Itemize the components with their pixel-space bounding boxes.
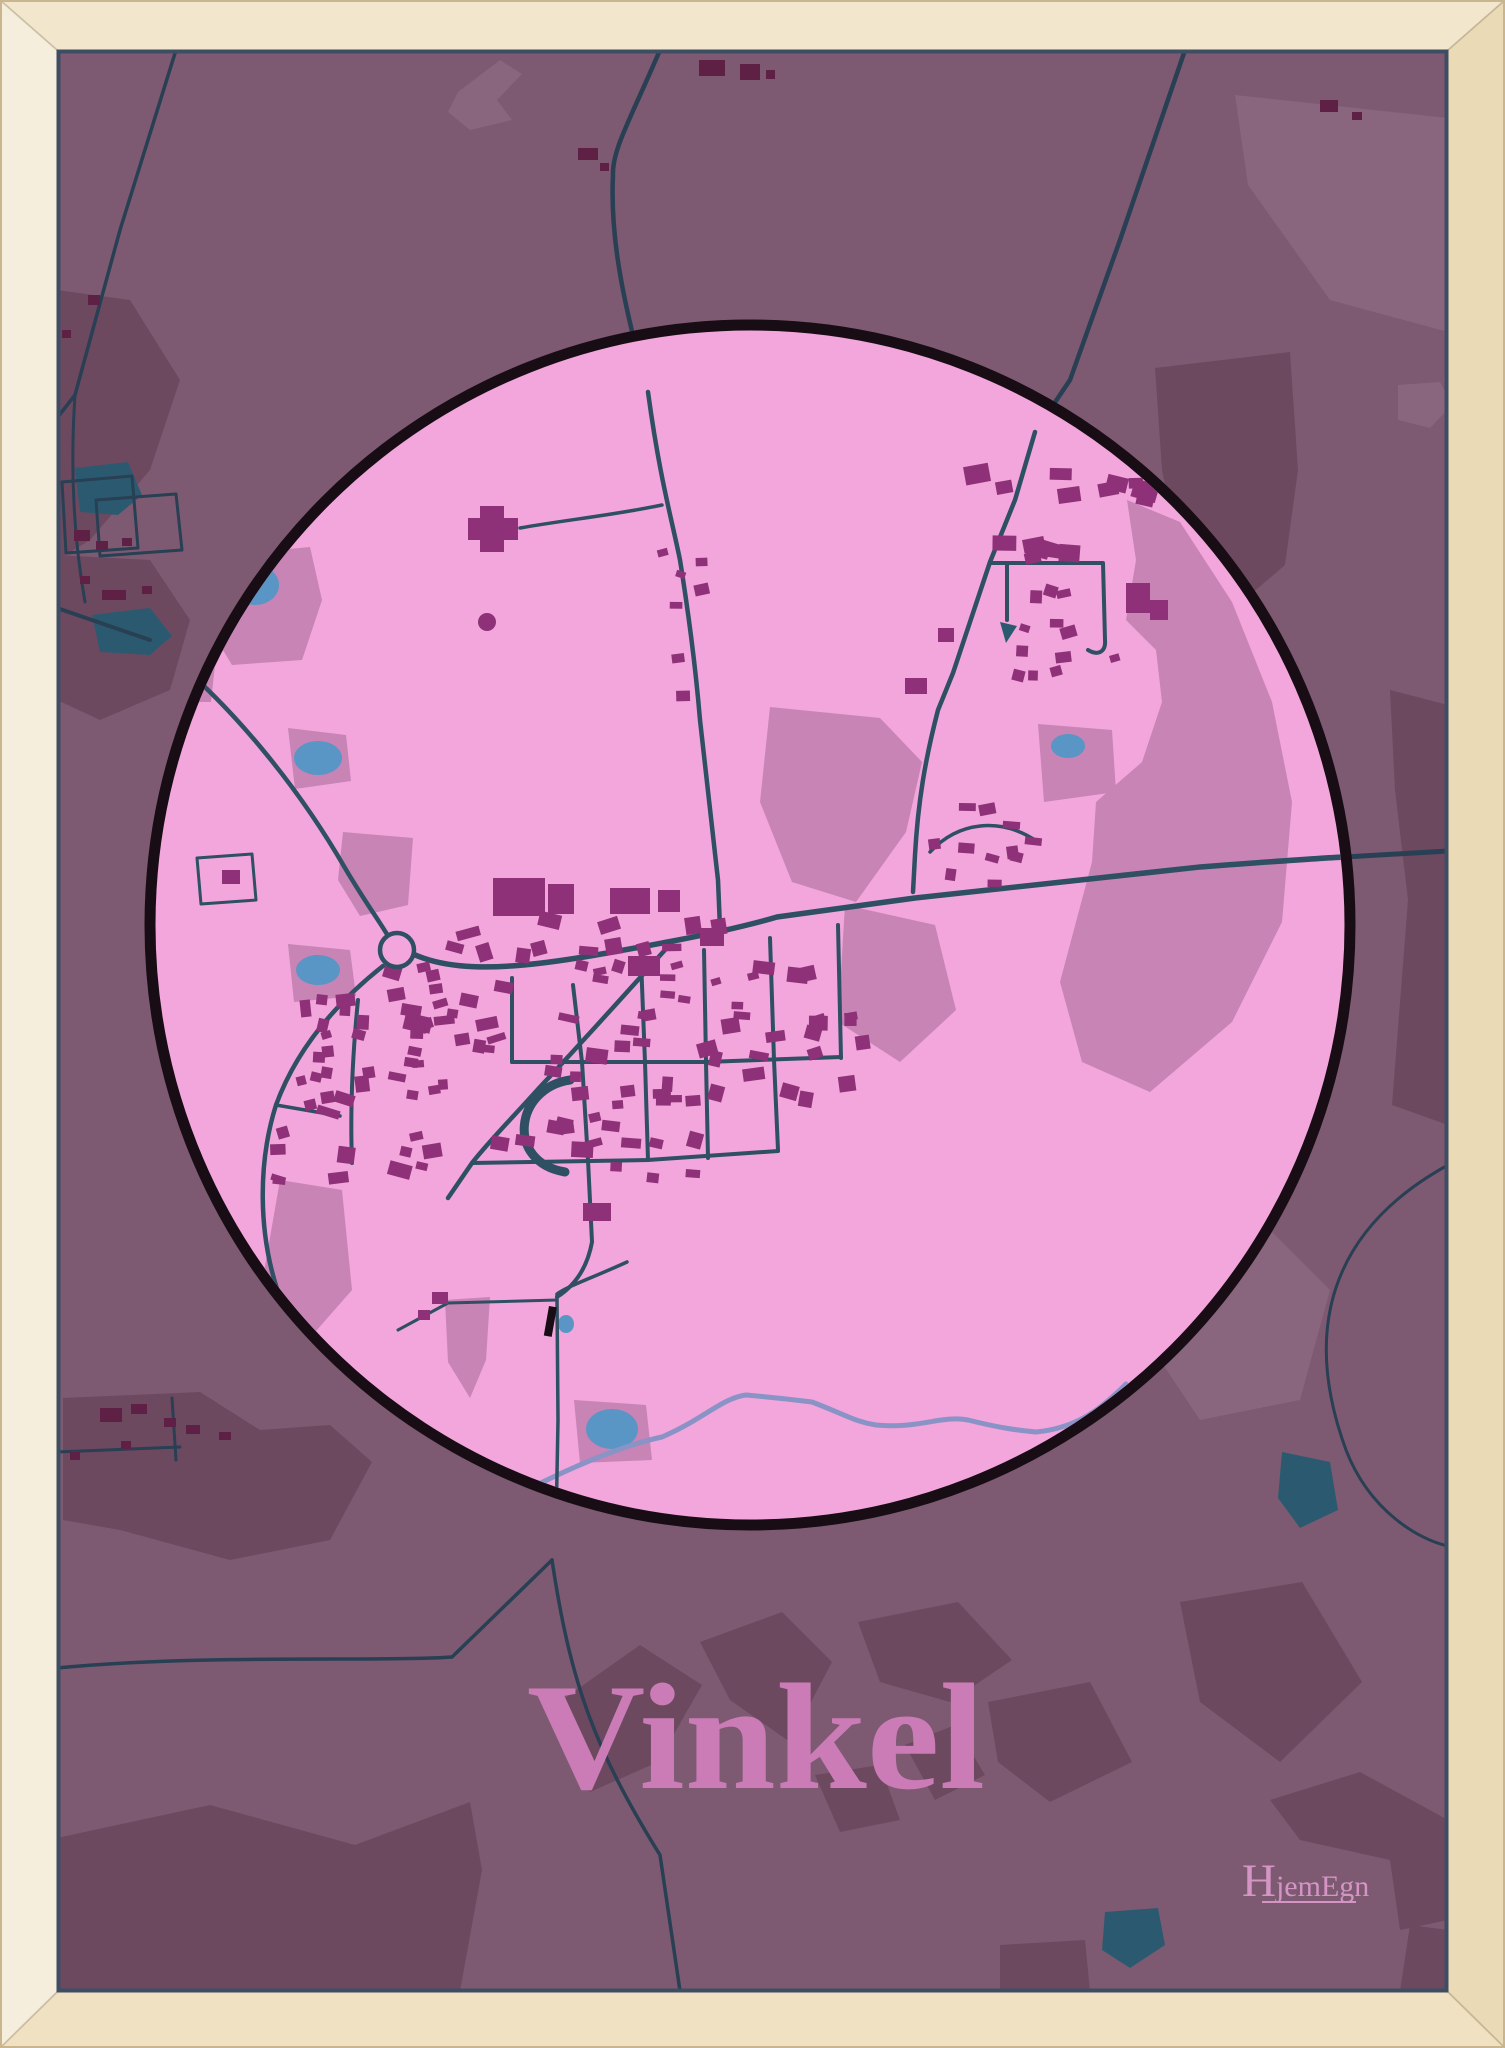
- building: [657, 1094, 671, 1104]
- building: [320, 1066, 333, 1079]
- building: [620, 1085, 636, 1098]
- building: [62, 330, 71, 338]
- building: [270, 1144, 286, 1155]
- building: [354, 1075, 370, 1093]
- building: [633, 1037, 651, 1047]
- building: [1050, 619, 1064, 628]
- building: [571, 1086, 589, 1101]
- building: [928, 838, 941, 850]
- building: [100, 1408, 122, 1422]
- building: [905, 678, 927, 694]
- building: [142, 586, 152, 594]
- building: [676, 691, 690, 702]
- building: [222, 870, 240, 884]
- frame-top: [0, 0, 1505, 50]
- building: [601, 1120, 620, 1132]
- building: [671, 653, 685, 663]
- building: [186, 1425, 200, 1434]
- building: [131, 1404, 147, 1414]
- building: [447, 1008, 459, 1018]
- building: [1352, 112, 1362, 120]
- building: [958, 842, 975, 853]
- building: [740, 64, 760, 80]
- building: [335, 993, 355, 1008]
- building: [662, 944, 681, 952]
- building: [164, 1418, 176, 1427]
- building: [731, 1002, 743, 1010]
- building: [614, 1040, 630, 1052]
- building: [438, 1079, 448, 1090]
- building: [699, 60, 725, 76]
- round-building: [478, 613, 496, 631]
- building: [219, 1432, 231, 1440]
- building: [515, 947, 531, 964]
- building: [696, 558, 708, 567]
- building: [571, 1141, 594, 1158]
- building: [610, 1162, 622, 1172]
- building: [337, 1146, 356, 1165]
- building: [550, 1055, 562, 1065]
- building: [945, 868, 957, 881]
- building: [412, 1060, 424, 1068]
- building: [658, 890, 680, 912]
- building: [313, 1052, 325, 1063]
- building: [548, 884, 574, 914]
- building: [493, 878, 545, 916]
- building: [585, 1047, 609, 1065]
- building: [406, 1090, 419, 1101]
- map-poster: Vinkel HjemEgn: [0, 0, 1505, 2048]
- field-patch: [1000, 1940, 1090, 1991]
- brand-rest: jemEgn: [1275, 1870, 1369, 1903]
- building: [646, 1172, 659, 1183]
- building: [660, 990, 675, 999]
- building: [628, 956, 660, 976]
- building: [684, 916, 702, 935]
- building: [988, 880, 1002, 888]
- building: [299, 999, 311, 1017]
- building: [102, 590, 126, 600]
- building: [700, 928, 724, 946]
- building: [844, 1013, 856, 1026]
- building: [122, 538, 132, 546]
- building: [1320, 100, 1338, 112]
- building: [685, 1095, 701, 1107]
- building: [721, 1017, 741, 1035]
- frame-bottom: [0, 1992, 1505, 2048]
- building: [316, 994, 328, 1005]
- pond: [586, 1409, 638, 1449]
- pond: [296, 955, 340, 985]
- frame-right: [1448, 0, 1505, 2048]
- building: [88, 295, 100, 305]
- poster-canvas: Vinkel HjemEgn: [0, 0, 1505, 2048]
- building: [621, 1137, 641, 1148]
- building: [600, 163, 609, 171]
- building: [685, 1169, 700, 1178]
- building: [570, 1071, 581, 1082]
- building: [1016, 645, 1028, 657]
- building: [320, 1091, 335, 1105]
- building: [855, 1035, 871, 1051]
- building: [579, 946, 599, 956]
- building: [1050, 468, 1072, 480]
- building: [670, 602, 683, 609]
- building: [80, 576, 90, 584]
- building: [992, 535, 1016, 550]
- building: [604, 937, 623, 956]
- building: [1058, 544, 1080, 563]
- roundabout: [380, 933, 414, 967]
- building: [766, 70, 775, 79]
- poster-title: Vinkel: [527, 1653, 985, 1821]
- building: [432, 1292, 448, 1304]
- building: [454, 1033, 470, 1047]
- building: [1003, 821, 1021, 830]
- building: [1030, 590, 1042, 603]
- pond: [558, 1315, 574, 1333]
- building: [612, 1100, 624, 1109]
- building: [798, 1091, 814, 1109]
- brand-initial: H: [1242, 1855, 1276, 1907]
- building: [1028, 670, 1038, 680]
- building: [959, 803, 976, 811]
- building: [1150, 600, 1168, 620]
- building: [838, 1075, 857, 1093]
- building: [96, 541, 108, 550]
- building: [660, 974, 675, 981]
- building: [74, 530, 90, 541]
- building: [1126, 583, 1150, 613]
- building: [121, 1441, 131, 1449]
- frame-left: [0, 0, 57, 2048]
- building: [1057, 486, 1081, 504]
- building: [1055, 651, 1072, 664]
- building: [70, 1452, 80, 1460]
- building: [583, 1203, 611, 1221]
- pond: [294, 741, 342, 775]
- building: [559, 1121, 575, 1135]
- building: [429, 983, 443, 994]
- field-patch: [57, 1802, 482, 1991]
- pond: [1051, 734, 1085, 758]
- building: [356, 1015, 369, 1030]
- building: [610, 888, 650, 914]
- building: [637, 1011, 648, 1020]
- field-patch: [1038, 724, 1116, 802]
- building: [578, 148, 598, 160]
- building: [418, 1310, 430, 1320]
- building: [272, 1176, 285, 1185]
- building: [938, 628, 954, 642]
- building: [620, 1024, 639, 1036]
